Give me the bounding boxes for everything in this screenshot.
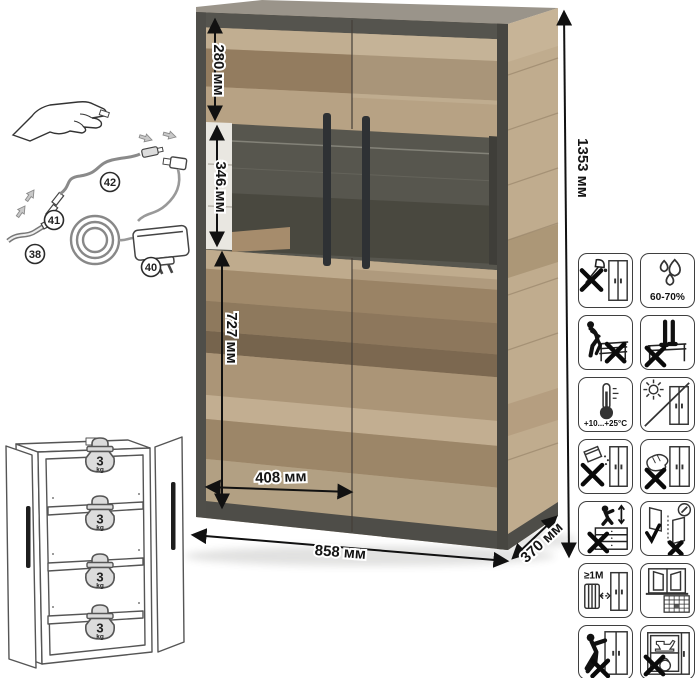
open-door-right-handle <box>171 482 176 550</box>
care-icon-acclimatization-window-calendar <box>640 563 695 618</box>
care-icon-no-spilling-liquids <box>578 439 633 494</box>
cable-coil <box>71 216 119 264</box>
care-icon-humidity-range: 60-70% <box>640 253 695 308</box>
dim-line-1353 <box>564 12 569 556</box>
dc-plug <box>163 156 187 170</box>
dimension-label-height: 1353 мм <box>574 138 591 198</box>
dimension-label-door-width: 408 мм <box>255 468 307 487</box>
care-icon-no-sitting <box>578 315 633 370</box>
care-icon-door-adjustment <box>640 501 695 556</box>
svg-text:kg: kg <box>96 525 104 532</box>
svg-text:kg: kg <box>96 583 104 590</box>
care-icon-temperature-range: +10...+25°C <box>578 377 633 432</box>
care-icon-label: +10...+25°C <box>584 419 627 428</box>
callout-led-strip: 38 <box>29 249 41 261</box>
care-icon-grid: 60-70%+10...+25°C≥1M <box>578 253 695 678</box>
product-spec-sheet: 280 мм 346 мм 727 мм 408 мм 858 мм 370 м… <box>0 0 700 678</box>
led-kit-diagram: 42 41 38 40 <box>8 102 191 277</box>
door-handle-left <box>323 113 331 266</box>
svg-text:kg: kg <box>96 634 104 641</box>
hand-icon <box>13 102 106 141</box>
svg-text:kg: kg <box>96 467 104 474</box>
dimension-label-bottom-section: 727 мм <box>223 312 240 363</box>
open-door-left <box>6 446 36 668</box>
callout-badges: 42 41 38 40 <box>26 173 161 277</box>
care-icon-heater-distance: ≥1M <box>578 563 633 618</box>
care-icon-no-overloading <box>640 625 695 678</box>
care-icon-no-dragging <box>578 625 633 678</box>
cabinet-side-panel <box>508 8 558 550</box>
care-icon-no-direct-sunlight <box>640 377 695 432</box>
door-handle-right <box>362 116 370 269</box>
open-door-right <box>155 437 184 652</box>
open-door-left-handle <box>26 506 31 568</box>
callout-cable: 42 <box>104 177 116 189</box>
callout-power-adapter: 40 <box>145 262 157 274</box>
care-icon-no-wet-cleaning <box>640 439 695 494</box>
care-icon-no-climbing <box>578 501 633 556</box>
care-icon-no-sharp-tools <box>578 253 633 308</box>
cabinet-illustration <box>185 0 577 566</box>
care-icon-label: 60-70% <box>650 292 685 303</box>
dimension-label-display-section: 346 мм <box>212 161 229 212</box>
care-icon-no-standing <box>640 315 695 370</box>
insert-arrows <box>14 130 177 219</box>
callout-connector: 41 <box>48 215 60 227</box>
dimension-label-top-section: 280 мм <box>210 44 227 95</box>
care-icon-label: ≥1M <box>584 570 604 581</box>
led-cable <box>60 154 140 194</box>
